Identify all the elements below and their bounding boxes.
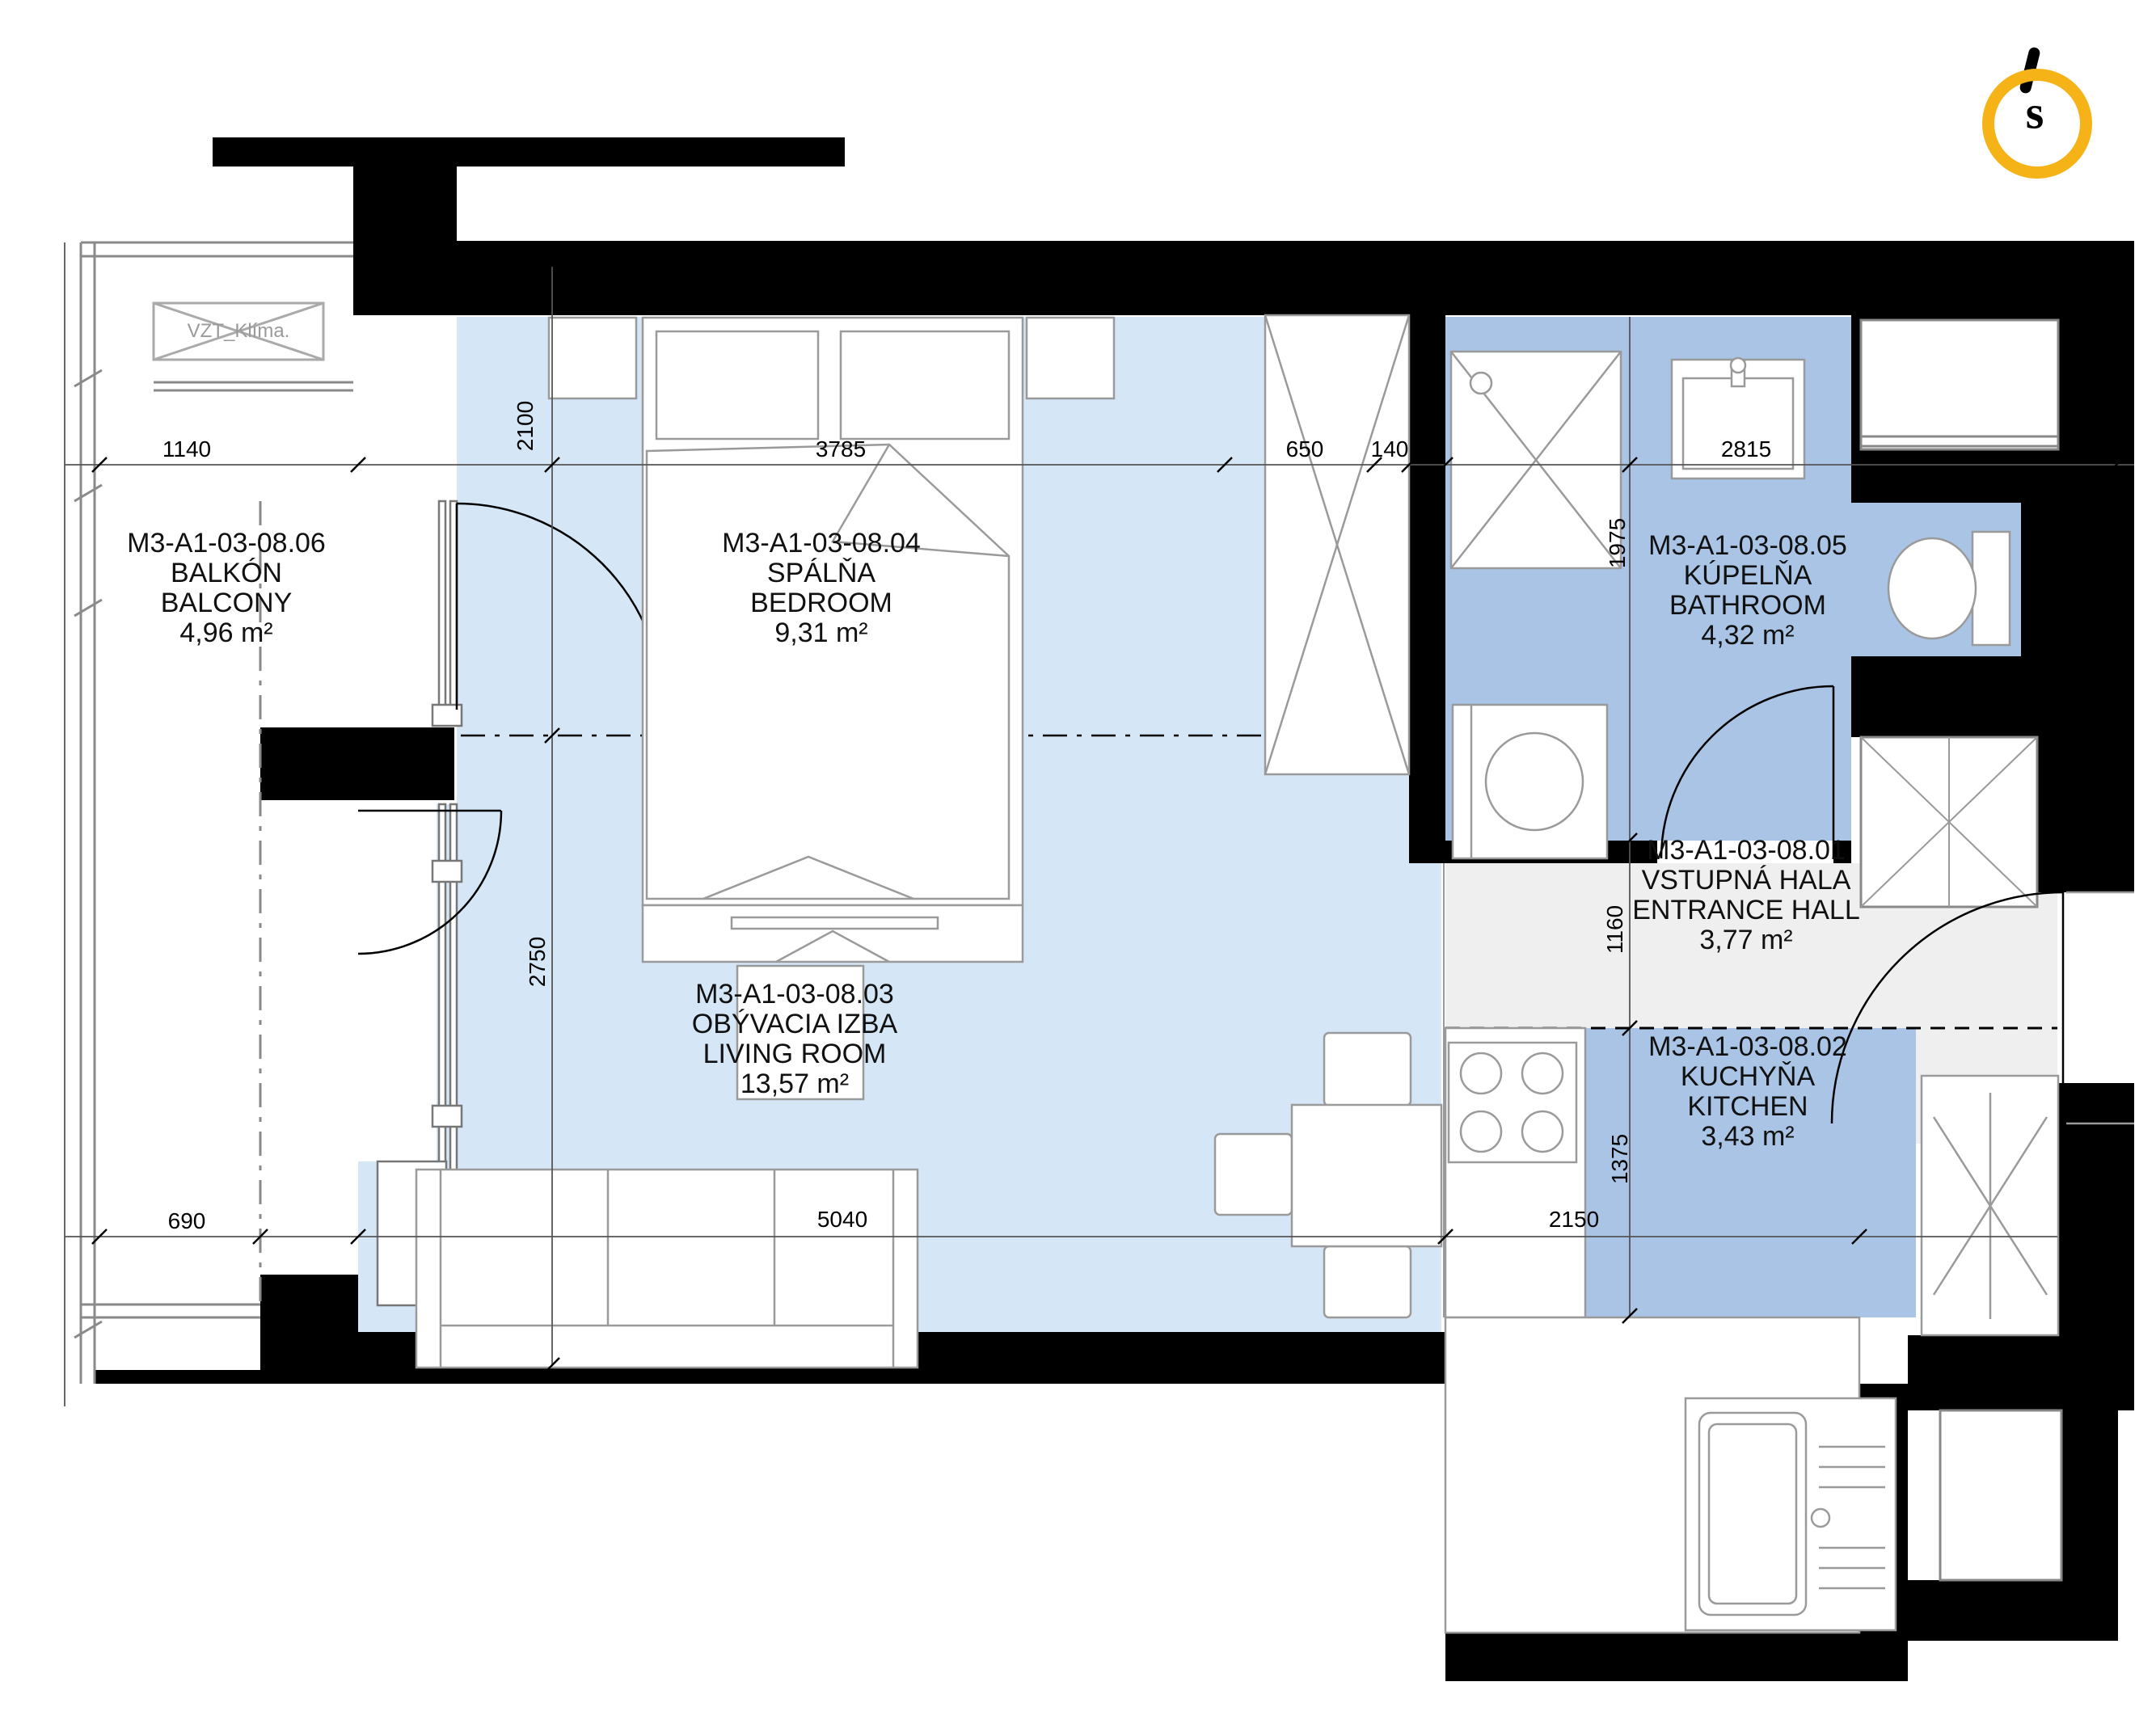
dim-5040: 5040 [817,1207,867,1233]
window-niche-top-right [1861,320,2058,449]
wall-left-stub [260,727,454,800]
hall-name-en: ENTRANCE HALL [1632,896,1860,925]
dim-2815: 2815 [1721,436,1771,462]
nightstand-left [549,318,636,398]
dim-140: 140 [1371,436,1409,462]
rail-hatch-2 [74,485,102,501]
bedroom-name-sk: SPÁLŇA [722,559,921,588]
washing-machine [1453,705,1607,858]
bathroom-name-en: BATHROOM [1648,591,1847,621]
duvet [647,445,1009,899]
bed-bench [643,905,1023,962]
nightstand-right [1027,318,1114,398]
room-label-kitchen: M3-A1-03-08.02 KUCHYŇA KITCHEN 3,43 m² [1648,1032,1847,1152]
sofa-body [416,1170,918,1368]
balcony-area: 4,96 m² [127,618,326,648]
bedroom-area: 9,31 m² [722,618,921,648]
wall-below-toilet-nook [1851,656,2021,737]
burner-3 [1461,1111,1501,1152]
room-label-bathroom: M3-A1-03-08.05 KÚPELŇA BATHROOM 4,32 m² [1648,531,1847,651]
dim-2750: 2750 [525,937,551,987]
rail-hatch-1 [74,370,102,386]
balcony-code: M3-A1-03-08.06 [127,529,326,559]
bathroom-code: M3-A1-03-08.05 [1648,531,1847,561]
wall-top-main [353,241,2134,315]
burner-1 [1461,1053,1501,1094]
wall-br-lower [1908,1580,2118,1641]
ventilation-shaft [1861,737,2037,907]
hall-code: M3-A1-03-08.01 [1632,836,1860,866]
wall-top-connector [353,166,457,242]
wall-br-upper [1908,1335,2118,1410]
dim-1160: 1160 [1602,905,1628,954]
balcony-linework [74,242,353,1384]
sink-faucet [1812,1509,1829,1527]
sink-bowl-inner [1709,1424,1796,1604]
balcony-name-sk: BALKÓN [127,559,326,588]
washbasin-faucet-head [1731,358,1745,373]
bathroom-name-sk: KÚPELŇA [1648,561,1847,591]
dining-chair-bottom [1324,1246,1411,1317]
hall-area: 3,77 m² [1632,925,1860,955]
ac-unit-label: VZT_Klíma. [188,320,290,343]
rail-hatch-4 [74,1321,102,1338]
wall-top-slab [213,137,845,166]
wall-balcony-bottom [95,1370,260,1384]
dim-2150: 2150 [1549,1207,1599,1233]
dining-table [1292,1105,1441,1246]
wall-bottom-kitchen [1445,1633,1908,1681]
wall-right-upper [2021,503,2134,737]
kitchen-name-en: KITCHEN [1648,1092,1847,1122]
pillow-left [656,331,818,439]
wardrobe [1265,315,1409,774]
stove [1449,1043,1576,1162]
washer-drum [1486,733,1583,830]
dining-chair-left [1215,1134,1292,1215]
kitchen-area: 3,43 m² [1648,1122,1847,1152]
hall-name-sk: VSTUPNÁ HALA [1632,866,1860,896]
frame-connector-3 [432,1106,462,1127]
bedroom-name-en: BEDROOM [722,588,921,618]
pillow-right [841,331,1009,439]
kitchen-name-sk: KUCHYŇA [1648,1062,1847,1092]
kitchen-sink [1686,1398,1896,1630]
room-label-bedroom: M3-A1-03-08.04 SPÁLŇA BEDROOM 9,31 m² [722,529,921,648]
kitchen-code: M3-A1-03-08.02 [1648,1032,1847,1062]
dim-1975: 1975 [1605,518,1631,568]
toilet [1888,532,2010,645]
balcony-name-en: BALCONY [127,588,326,618]
living-name-sk: OBÝVACIA IZBA [692,1010,897,1039]
wall-corner-block [260,1275,358,1384]
toilet-bowl [1888,538,1976,639]
dim-1375: 1375 [1607,1134,1633,1184]
bathroom-area: 4,32 m² [1648,621,1847,651]
door-frame-top-1 [439,501,445,710]
wall-br-right [2061,1410,2118,1580]
sofa [416,1170,918,1368]
living-code: M3-A1-03-08.03 [692,980,897,1010]
rail-hatch-3 [74,600,102,616]
appliance-symbol [1922,1076,2058,1335]
niche-bottom-right [1940,1410,2061,1580]
dim-2100: 2100 [513,401,538,451]
bedroom-code: M3-A1-03-08.04 [722,529,921,559]
room-label-living: M3-A1-03-08.03 OBÝVACIA IZBA LIVING ROOM… [692,980,897,1099]
room-label-hall: M3-A1-03-08.01 VSTUPNÁ HALA ENTRANCE HAL… [1632,836,1860,955]
living-name-en: LIVING ROOM [692,1039,897,1069]
room-label-balcony: M3-A1-03-08.06 BALKÓN BALCONY 4,96 m² [127,529,326,648]
dim-650: 650 [1286,436,1324,462]
living-area: 13,57 m² [692,1069,897,1099]
dim-1140: 1140 [162,436,211,462]
wall-bathroom-left [1409,315,1445,863]
burner-2 [1522,1053,1563,1094]
logo-letter: s [2026,86,2044,140]
dim-3785: 3785 [816,436,866,462]
bed-bench-bar [732,917,938,929]
toilet-cistern [1972,532,2010,645]
shower [1451,352,1621,568]
dim-690: 690 [168,1208,206,1234]
shower-drain [1470,373,1491,394]
burner-4 [1522,1111,1563,1152]
frame-connector-2 [432,861,462,882]
floor-plan-page: M3-A1-03-08.06 BALKÓN BALCONY 4,96 m² M3… [0,0,2156,1724]
wall-right-of-shaft [2037,737,2134,892]
dining-chair-top [1324,1033,1411,1106]
